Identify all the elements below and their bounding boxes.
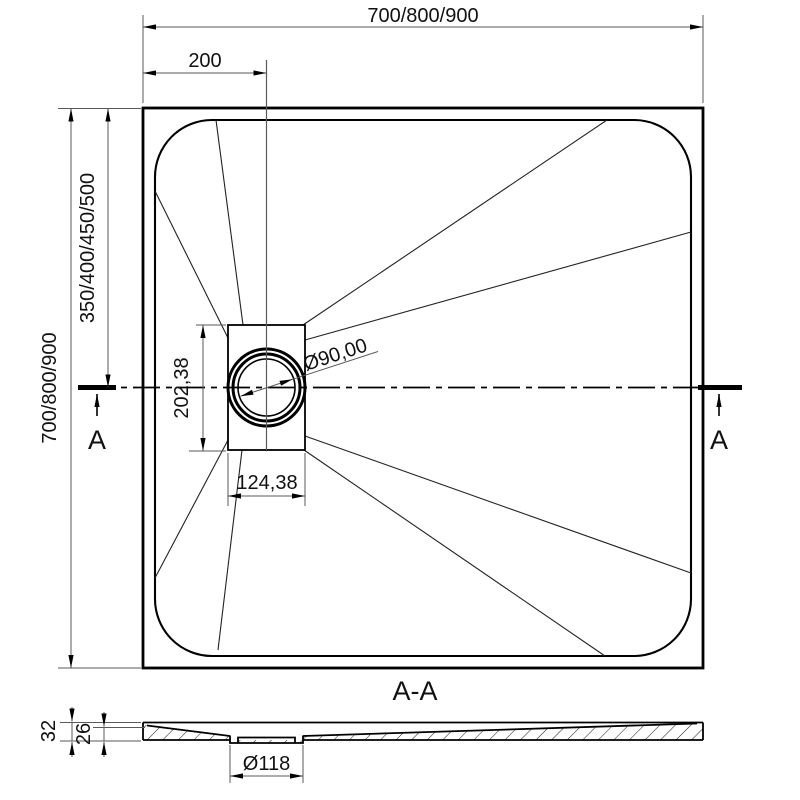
fold-line — [304, 450, 605, 656]
section-cut-left: A — [78, 388, 116, 456]
dim-top-width: 700/800/900 — [143, 5, 703, 27]
dim-section-height-text: 32 — [38, 720, 60, 742]
section-arrow-label-left: A — [88, 425, 106, 455]
plan-view: A A 700/800/900 200 — [39, 5, 742, 668]
section-view: A-A 32 — [38, 676, 703, 783]
dim-section-floor-height-text: 26 — [73, 723, 95, 745]
fold-line — [155, 191, 228, 338]
technical-drawing-page: { "plan_view": { "top_width_dim": "700/8… — [0, 0, 800, 800]
section-cut-right: A — [698, 388, 742, 456]
dim-drain-offset-text: 200 — [188, 50, 221, 72]
section-title: A-A — [392, 676, 437, 706]
dim-top-width-text: 700/800/900 — [367, 5, 478, 27]
dim-drain-diameter-text: Ø90,00 — [301, 335, 370, 376]
fold-line — [303, 120, 607, 325]
dim-left-height: 700/800/900 — [39, 109, 71, 669]
dim-left-half-height: 350/400/450/500 — [77, 109, 108, 388]
dim-drain-box-width: 124,38 — [228, 472, 305, 496]
dim-section-floor-height: 26 — [73, 712, 104, 757]
fold-line — [216, 120, 243, 325]
dim-drain-box-width-text: 124,38 — [236, 472, 297, 494]
fold-line — [305, 232, 691, 340]
dim-drain-hole-diameter: Ø118 — [230, 753, 303, 776]
dim-left-half-height-text: 350/400/450/500 — [77, 173, 99, 323]
section-arrow-label-right: A — [710, 425, 728, 455]
dim-drain-offset: 200 — [143, 50, 267, 73]
dim-section-height: 32 — [38, 707, 72, 757]
fold-line — [305, 436, 691, 573]
dim-drain-box-height-text: 202,38 — [171, 357, 193, 418]
dim-drain-hole-diameter-text: Ø118 — [243, 753, 290, 775]
dim-left-height-text: 700/800/900 — [39, 332, 61, 443]
fold-line — [155, 440, 228, 578]
shower-tray-drawing: A A 700/800/900 200 — [0, 0, 800, 800]
